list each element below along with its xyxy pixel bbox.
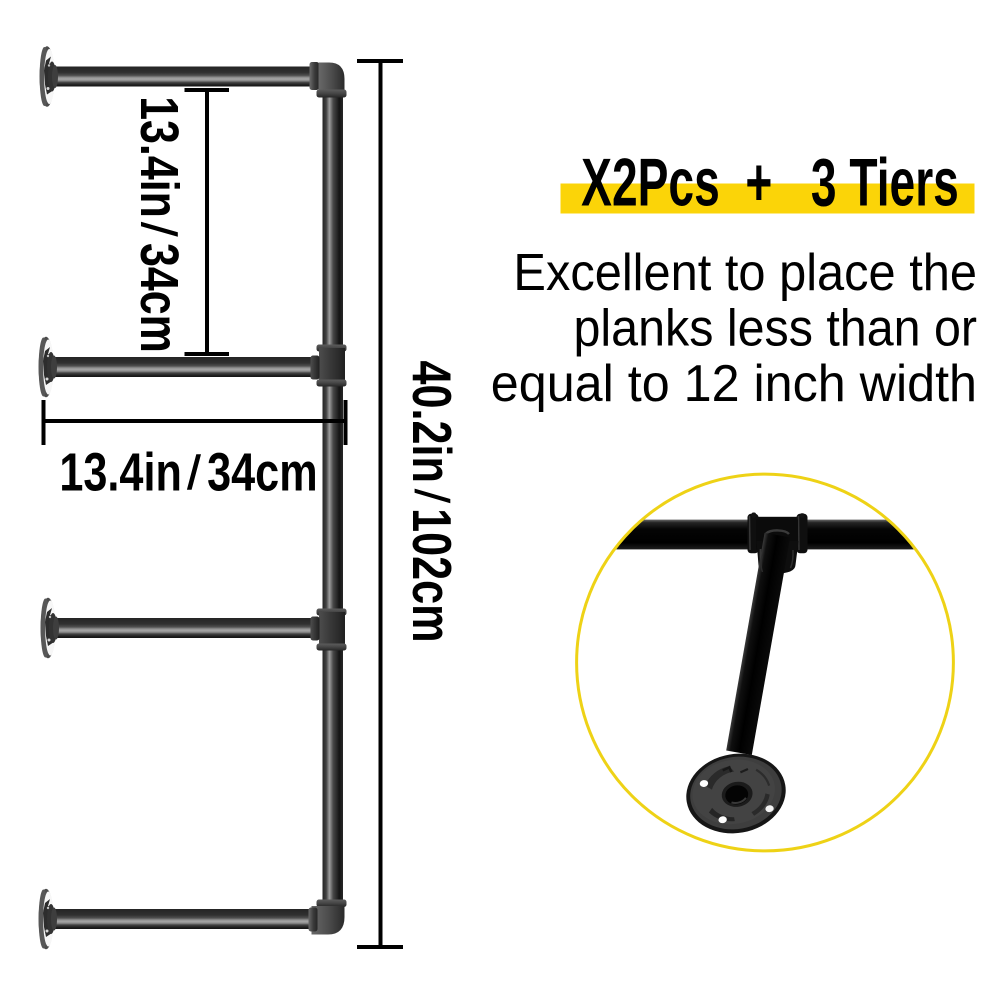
svg-text:Excellent to place the: Excellent to place the [513, 243, 977, 302]
svg-text:13.4in / 34cm: 13.4in / 34cm [59, 443, 317, 503]
svg-text:13.4in / 34cm: 13.4in / 34cm [129, 96, 189, 353]
svg-text:planks less than or: planks less than or [574, 299, 977, 357]
svg-text:X2Pcs + 3 Tiers: X2Pcs + 3 Tiers [581, 146, 959, 221]
svg-text:40.2in / 102cm: 40.2in / 102cm [401, 360, 462, 642]
svg-text:equal to 12 inch width: equal to 12 inch width [491, 354, 977, 412]
